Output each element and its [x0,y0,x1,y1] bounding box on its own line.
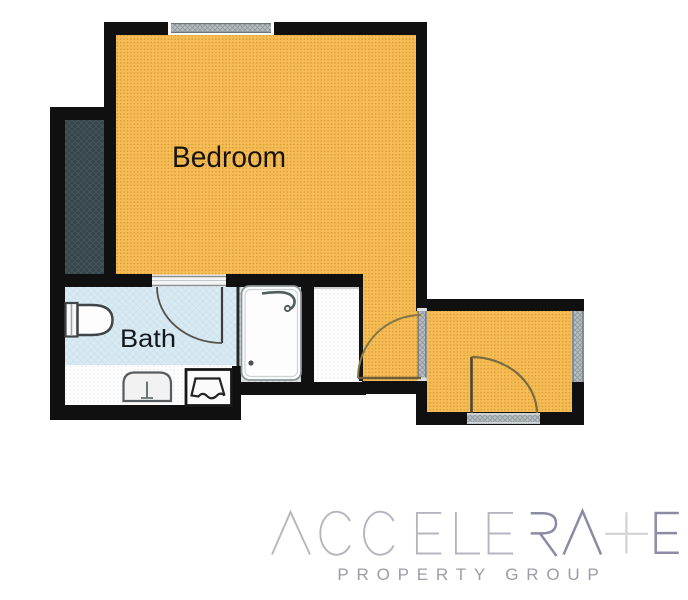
svg-text:Bedroom: Bedroom [172,141,286,174]
svg-text:Bath: Bath [120,325,176,353]
svg-text:PROPERTY GROUP: PROPERTY GROUP [337,565,606,584]
